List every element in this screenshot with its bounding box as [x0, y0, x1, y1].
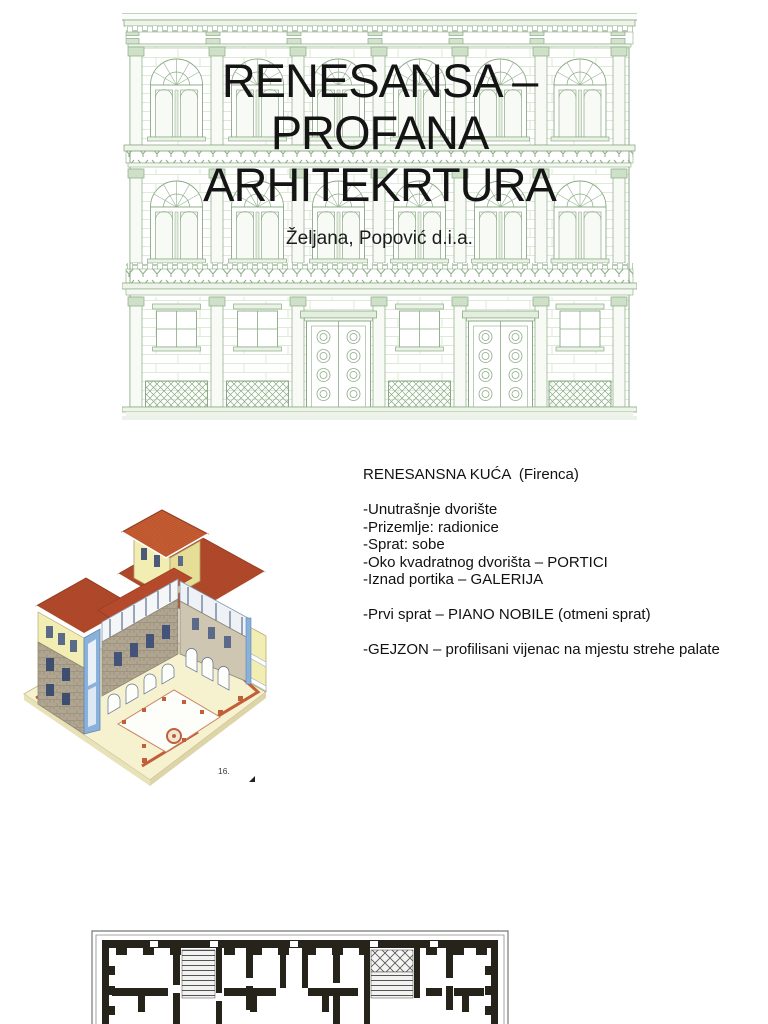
corner-mark — [249, 776, 255, 782]
slide-title: RENESANSA – PROFANA ARHITEKRTURA Željana… — [122, 13, 637, 420]
presentation-title: RENESANSA – PROFANA ARHITEKRTURA — [162, 55, 597, 211]
house-cutaway-drawing — [22, 486, 268, 798]
text-line: -Unutrašnje dvorište — [363, 501, 763, 519]
figure-number: 16. — [218, 766, 230, 776]
staircase-2 — [371, 972, 413, 998]
text-line — [363, 624, 763, 642]
slide-text-block: RENESANSNA KUĆA (Firenca) -Unutrašnje dv… — [363, 466, 763, 659]
presentation-subtitle: Željana, Popović d.i.a. — [122, 227, 637, 251]
text-line — [363, 589, 763, 607]
right-wing-cut — [246, 618, 266, 692]
staircase-1 — [182, 950, 215, 998]
slide-floor-plan — [90, 928, 510, 1024]
floor-plan-drawing — [90, 928, 510, 1024]
text-line: -GEJZON – profilisani vijenac na mjestu … — [363, 641, 763, 659]
text-line: -Sprat: sobe — [363, 536, 763, 554]
text-heading: RENESANSNA KUĆA (Firenca) — [363, 466, 763, 484]
text-line: -Iznad portika – GALERIJA — [363, 571, 763, 589]
text-line — [363, 484, 763, 502]
page-background: RENESANSA – PROFANA ARHITEKRTURA Željana… — [0, 0, 768, 1024]
house-cutaway-figure: 16. — [22, 486, 268, 798]
text-line: -Prvi sprat – PIANO NOBILE (otmeni sprat… — [363, 606, 763, 624]
staircase-2-vault — [371, 950, 413, 972]
document-page: { "slide1": { "title": "RENESANSA – PROF… — [0, 0, 768, 1024]
text-line: -Prizemlje: radionice — [363, 519, 763, 537]
text-line: -Oko kvadratnog dvorišta – PORTICI — [363, 554, 763, 572]
